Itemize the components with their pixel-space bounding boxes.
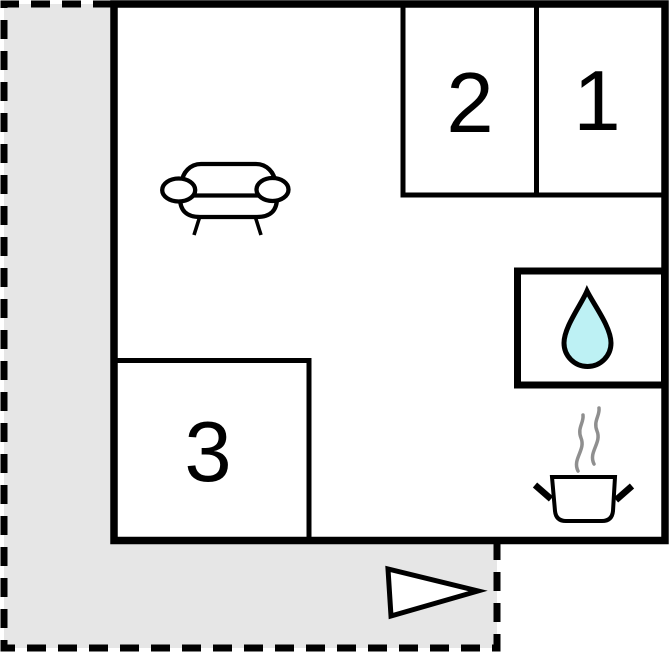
room-1-label: 1 (573, 54, 620, 149)
pot-body (552, 477, 615, 521)
floor-plan-drawing: 2 1 3 (0, 0, 669, 652)
room-3-label: 3 (184, 405, 231, 500)
sofa-left-armrest (162, 179, 195, 202)
room-2-label: 2 (446, 56, 493, 151)
floor-plan: 2 1 3 (0, 0, 669, 652)
sofa-right-armrest (257, 178, 289, 201)
